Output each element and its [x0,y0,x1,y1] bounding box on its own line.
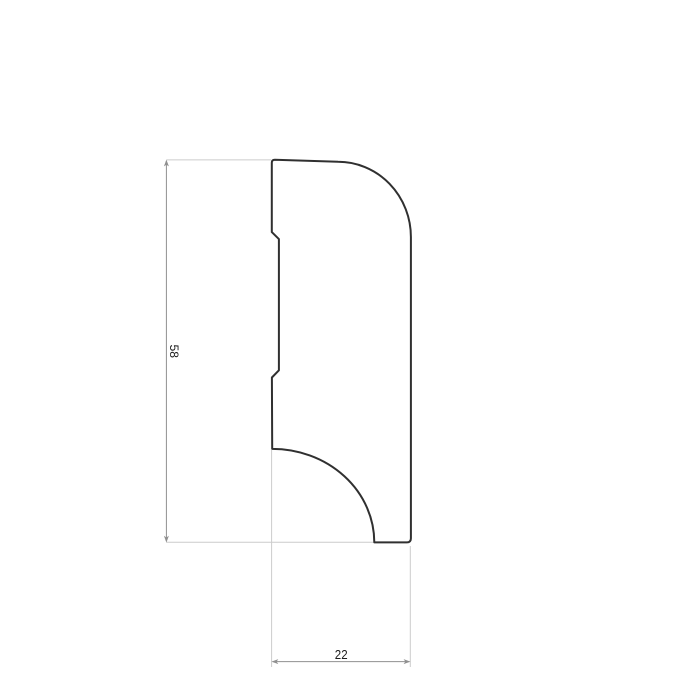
svg-text:58: 58 [167,345,181,359]
svg-text:22: 22 [335,647,348,662]
